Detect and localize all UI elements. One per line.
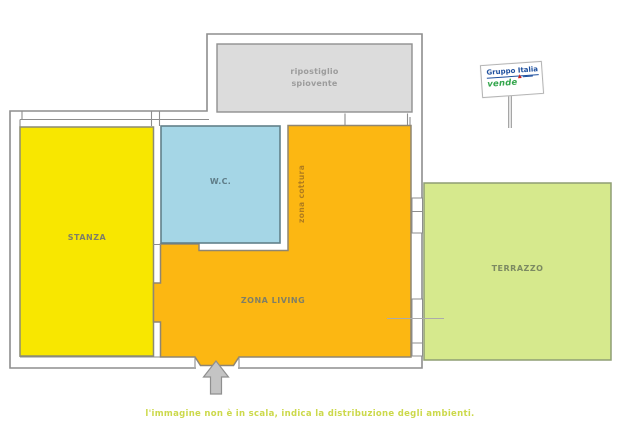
sign-brand-triangle-icon: ▲ — [518, 74, 533, 80]
window-upper — [412, 198, 423, 233]
disclaimer-caption: l'immagine non è in scala, indica la dis… — [0, 409, 620, 419]
sign-post — [508, 95, 512, 128]
wc-label: W.C. — [161, 177, 280, 186]
zona-living-label: ZONA LIVING — [173, 296, 373, 305]
sign-vende-text: vende — [487, 78, 518, 90]
window-lower — [412, 299, 423, 356]
ripostiglio-label-line1: ripostiglio — [217, 66, 412, 78]
ripostiglio-label: ripostiglio spiovente — [217, 66, 412, 89]
stanza-label: STANZA — [20, 233, 154, 242]
ripostiglio-label-line2: spiovente — [217, 78, 412, 90]
zona-cottura-label: zona cottura — [294, 148, 310, 240]
agency-sign: Gruppo Italia ▲ vende — [480, 61, 544, 98]
terrazzo-label: TERRAZZO — [424, 264, 611, 273]
floor-plan: STANZA W.C. ZONA LIVING zona cottura TER… — [0, 0, 620, 426]
sign-underline — [523, 74, 533, 78]
